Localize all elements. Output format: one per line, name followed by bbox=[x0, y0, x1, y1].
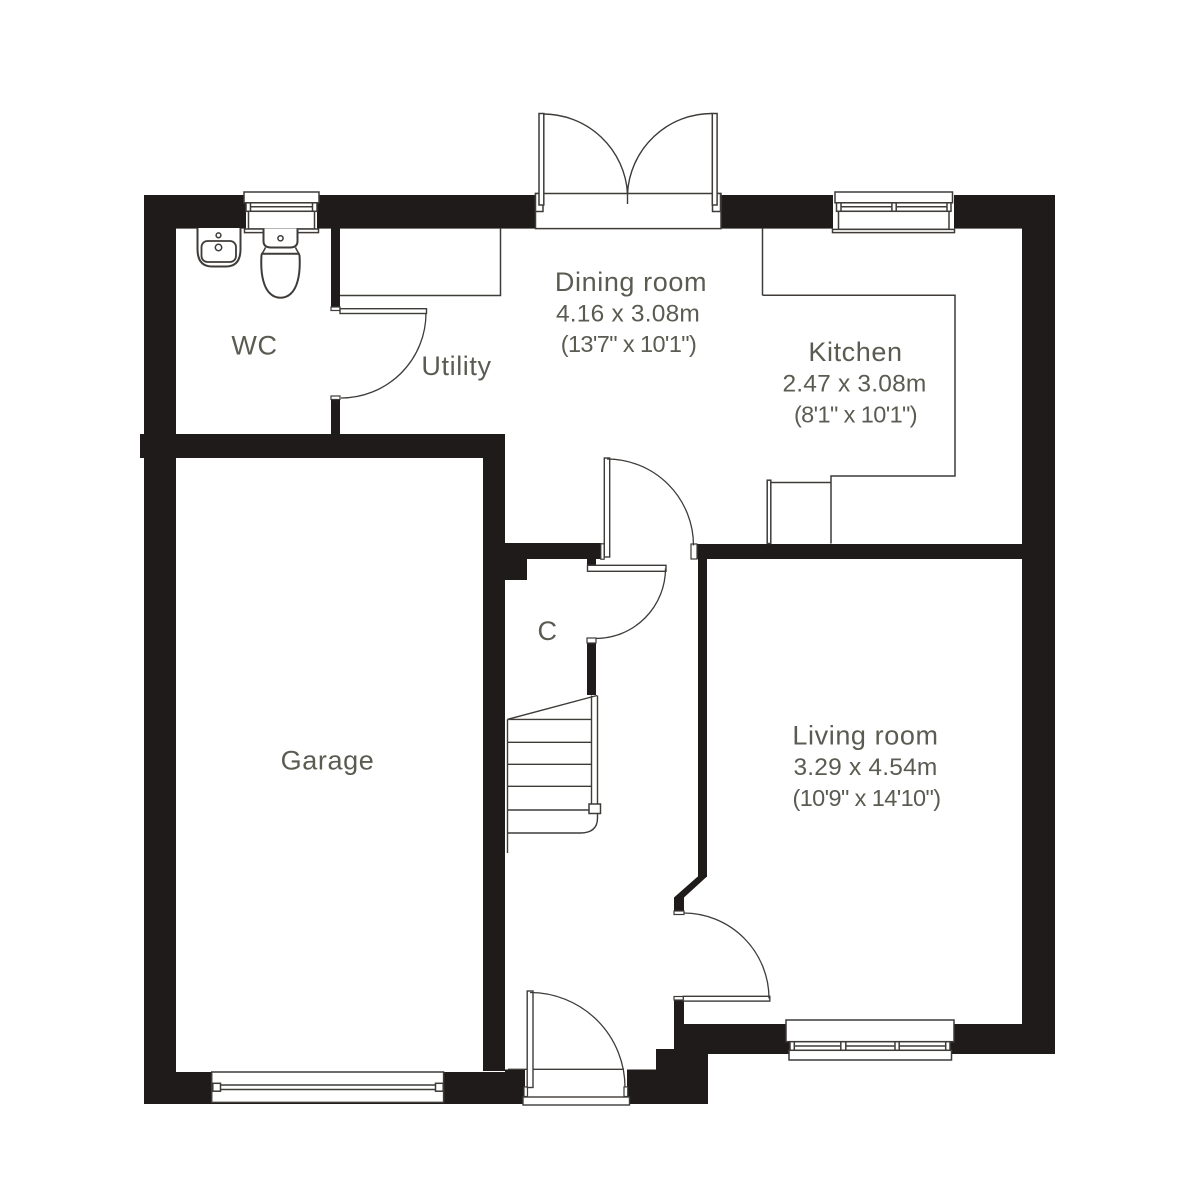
svg-text:WC: WC bbox=[231, 331, 277, 361]
svg-text:Utility: Utility bbox=[421, 351, 491, 381]
svg-text:2.47 x 3.08m: 2.47 x 3.08m bbox=[782, 371, 926, 398]
svg-text:C: C bbox=[537, 616, 557, 646]
svg-text:(10'9" x 14'10"): (10'9" x 14'10") bbox=[792, 785, 940, 811]
svg-text:Dining room: Dining room bbox=[555, 267, 707, 297]
svg-text:Kitchen: Kitchen bbox=[808, 337, 902, 367]
svg-text:(13'7" x 10'1"): (13'7" x 10'1") bbox=[561, 331, 697, 357]
svg-text:4.16 x 3.08m: 4.16 x 3.08m bbox=[556, 301, 700, 328]
svg-text:(8'1" x 10'1"): (8'1" x 10'1") bbox=[794, 402, 917, 428]
svg-text:Living room: Living room bbox=[792, 721, 938, 751]
svg-text:Garage: Garage bbox=[281, 746, 375, 776]
svg-text:3.29 x 4.54m: 3.29 x 4.54m bbox=[793, 754, 937, 781]
